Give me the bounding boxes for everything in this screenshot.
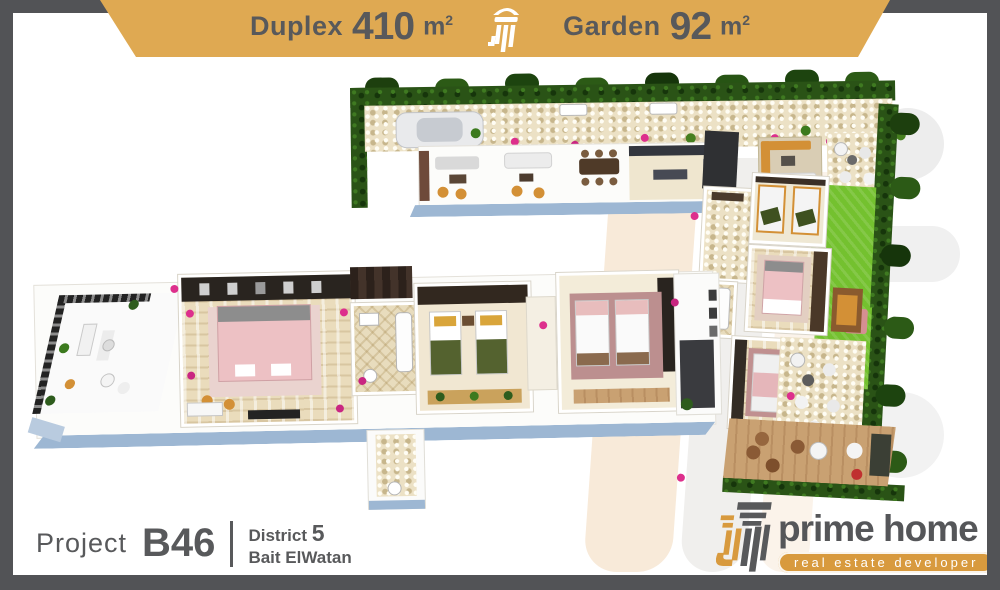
balcony-chairs (100, 374, 115, 386)
deck-table (810, 442, 827, 459)
district-label: District (248, 526, 307, 545)
slab-edge (369, 500, 425, 510)
double-bed (218, 305, 312, 381)
garden-bench (560, 105, 586, 115)
patio-table (802, 374, 815, 387)
dresser (188, 403, 222, 416)
armchair-gold (437, 187, 448, 198)
pillows (765, 261, 803, 273)
wall-frames (199, 283, 209, 295)
divider (230, 521, 233, 567)
bed (763, 261, 804, 315)
pillows (218, 305, 310, 322)
dining-chairs (581, 150, 589, 158)
daybed (793, 188, 819, 233)
tv-console (248, 409, 300, 419)
column-icon (488, 0, 528, 54)
kitchen-island (653, 169, 687, 179)
coffee-table (449, 174, 466, 183)
sink (360, 314, 378, 325)
swing-seat (836, 295, 858, 326)
lounger (77, 325, 96, 355)
flower-cluster (690, 212, 698, 220)
wardrobe (417, 285, 527, 305)
car (396, 112, 482, 147)
brand-text: prime home real estate developer (778, 510, 994, 573)
balcony-plants (44, 395, 56, 405)
wall-frames (709, 290, 717, 301)
balcony-table (102, 340, 114, 350)
pouf-gold (64, 379, 76, 389)
planter-bench (428, 389, 522, 405)
district-line: District 5 (248, 520, 351, 548)
car-roof (416, 117, 462, 142)
bedroom-floor-wing (28, 258, 722, 477)
duplex-area-value: 410 (352, 5, 414, 49)
staircase (702, 130, 739, 190)
planter (869, 434, 891, 477)
flyer-canvas: { "banner": { "left": {"label": "Duplex"… (0, 0, 1000, 590)
unit-m: m (423, 12, 445, 40)
swing-bench (831, 287, 863, 333)
patio-chairs (791, 353, 805, 367)
flower-cluster (186, 310, 194, 318)
coffee-table (519, 173, 533, 181)
foot-cushions (235, 364, 255, 376)
toilet (364, 370, 376, 382)
blanket-green (431, 340, 462, 375)
top-banner: Duplex 410 m2 Garden 92 m2 (0, 0, 1000, 57)
throw-green (760, 207, 781, 225)
garden-area-unit: m2 (720, 12, 750, 41)
tree-row-right (889, 112, 920, 136)
project-info: Project B46 District 5 Bait ElWatan (36, 520, 352, 568)
sheet (763, 299, 802, 315)
blanket-green (477, 339, 508, 374)
project-label: Project (36, 528, 127, 559)
wardrobe (810, 251, 828, 332)
twin-bed (476, 311, 507, 374)
sofa (505, 153, 551, 168)
unit-m: m (720, 12, 742, 40)
brand-name: prime home (778, 510, 994, 547)
pillow-gold (480, 315, 502, 325)
bench-plants (436, 392, 445, 401)
entry-corridor (367, 430, 425, 509)
unit-sup: 2 (742, 12, 750, 28)
sofa (435, 156, 479, 170)
garden-area-value: 92 (670, 5, 711, 49)
pillow-gold (434, 316, 456, 326)
garden-label: Garden (563, 11, 661, 42)
twin-bed (576, 301, 609, 366)
master-bedroom (178, 271, 357, 427)
nightstand (462, 316, 474, 326)
pouf-cluster (746, 445, 761, 460)
pillow-pink (576, 301, 608, 316)
armchair-gold (511, 186, 522, 197)
banner-content: Duplex 410 m2 Garden 92 m2 (250, 0, 750, 58)
master-bathroom (351, 302, 421, 395)
hallway (527, 297, 557, 390)
garden-bedroom (745, 245, 831, 335)
bench (574, 388, 670, 404)
pillow-pink (616, 300, 648, 315)
twin-bed (616, 300, 649, 365)
tv-wall (419, 151, 430, 201)
balcony-railing (57, 293, 151, 303)
throw-green (795, 209, 816, 227)
flower-cluster (511, 138, 519, 146)
project-code: B46 (142, 521, 215, 566)
shrub-cluster (471, 128, 481, 138)
daybed-lounge (749, 173, 829, 247)
district-number: 5 (312, 520, 325, 546)
duplex-area-unit: m2 (423, 12, 453, 41)
brand-logo: prime home real estate developer (716, 498, 994, 574)
living-room-floor (419, 143, 720, 207)
district-info: District 5 Bait ElWatan (248, 520, 351, 568)
bathtub (396, 313, 412, 371)
unit-sup: 2 (445, 12, 453, 28)
dressing-room (350, 266, 413, 299)
footboard (577, 353, 609, 366)
daybed (758, 186, 784, 231)
footboard (617, 352, 649, 365)
dining-table (579, 158, 619, 175)
terrace-bench (711, 192, 743, 202)
twin-bed (430, 312, 461, 375)
duplex-label: Duplex (250, 11, 343, 42)
kids-bedroom (414, 281, 533, 413)
column-icon (716, 498, 776, 574)
deck (723, 418, 896, 487)
bedroom-2 (556, 270, 681, 413)
district-area: Bait ElWatan (248, 548, 351, 568)
garden-bench (650, 103, 676, 113)
red-flowers (851, 469, 863, 481)
plant (681, 398, 693, 410)
brand-tagline: real estate developer (778, 552, 994, 573)
stairwell (674, 274, 721, 415)
wall (755, 176, 825, 186)
